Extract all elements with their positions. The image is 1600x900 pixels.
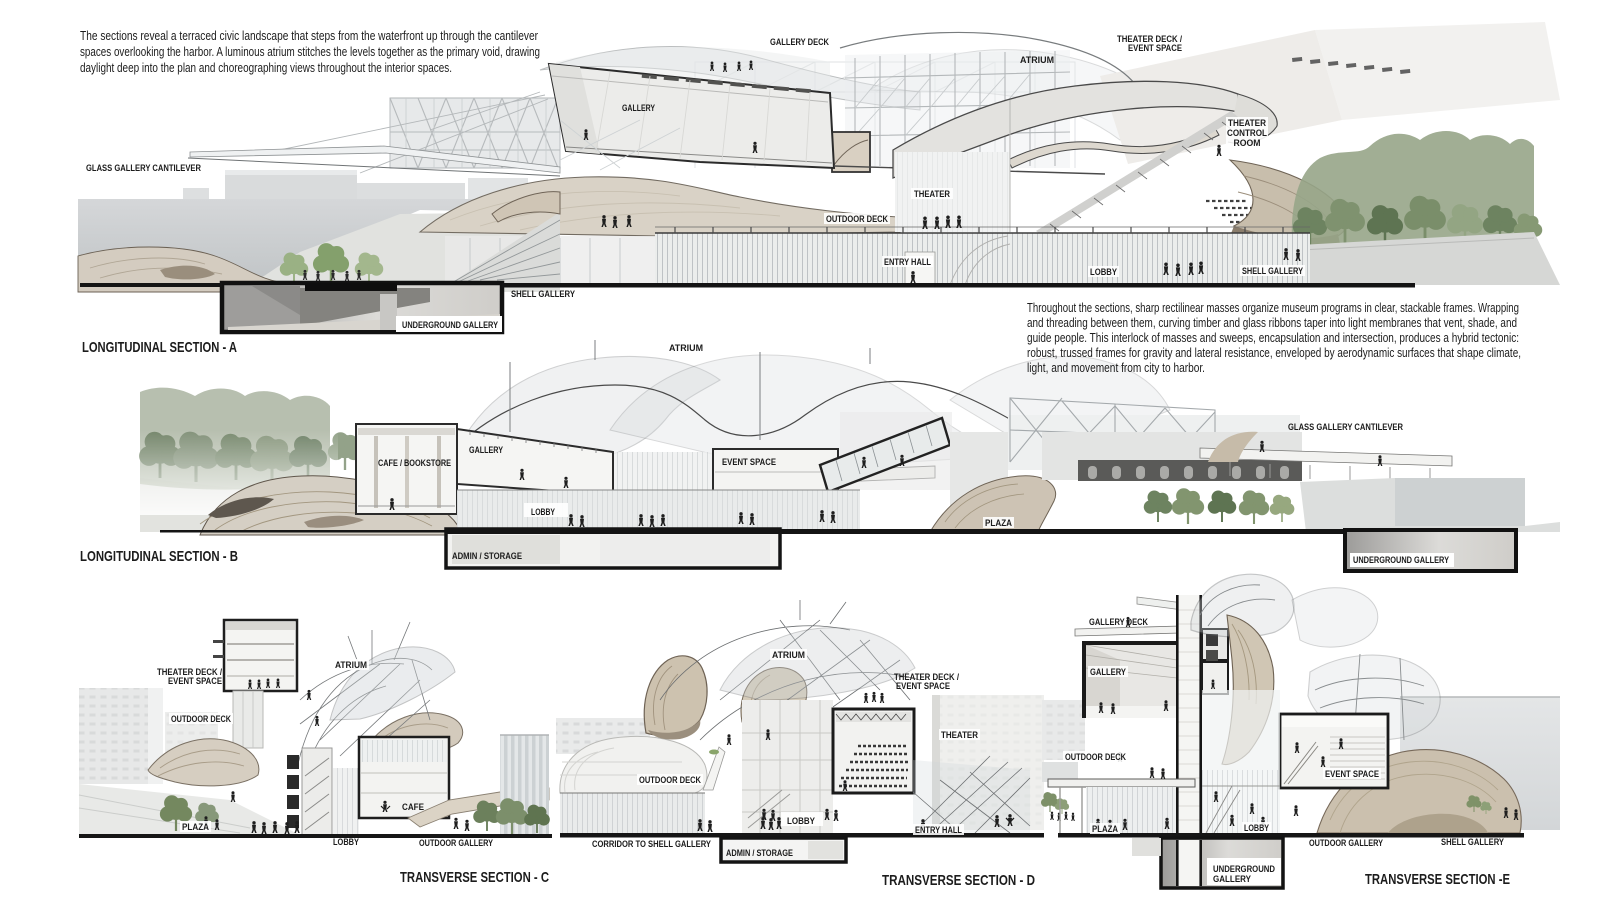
svg-text:TRANSVERSE SECTION - C: TRANSVERSE SECTION - C — [400, 869, 549, 886]
svg-text:LOBBY: LOBBY — [1244, 823, 1269, 833]
svg-text:OUTDOOR DECK: OUTDOOR DECK — [171, 714, 231, 724]
svg-text:ATRIUM: ATRIUM — [335, 660, 367, 670]
svg-text:GALLERY: GALLERY — [622, 103, 655, 113]
svg-text:and threading between them, cu: and threading between them, curving timb… — [1027, 315, 1517, 330]
svg-text:ADMIN / STORAGE: ADMIN / STORAGE — [452, 551, 522, 561]
svg-text:LOBBY: LOBBY — [531, 507, 555, 517]
svg-text:GALLERY DECK: GALLERY DECK — [770, 37, 829, 47]
svg-text:GLASS GALLERY CANTILEVER: GLASS GALLERY CANTILEVER — [1288, 422, 1403, 432]
svg-text:THEATER: THEATER — [914, 189, 950, 199]
svg-text:ENTRY HALL: ENTRY HALL — [884, 257, 931, 267]
svg-text:CAFE / BOOKSTORE: CAFE / BOOKSTORE — [378, 458, 451, 468]
svg-text:LOBBY: LOBBY — [1090, 267, 1117, 277]
svg-text:GALLERY: GALLERY — [1213, 874, 1251, 884]
svg-text:TRANSVERSE SECTION - D: TRANSVERSE SECTION - D — [882, 872, 1035, 889]
svg-text:daylight deep into the plan an: daylight deep into the plan and choreogr… — [80, 60, 452, 75]
svg-text:OUTDOOR DECK: OUTDOOR DECK — [639, 775, 701, 785]
svg-text:THEATER: THEATER — [1228, 118, 1266, 128]
svg-text:light, and movement from city: light, and movement from city to harbor. — [1027, 360, 1205, 375]
svg-text:CORRIDOR TO SHELL GALLERY: CORRIDOR TO SHELL GALLERY — [592, 839, 711, 849]
svg-text:GALLERY DECK: GALLERY DECK — [1089, 617, 1148, 627]
svg-text:Throughout the sections, sharp: Throughout the sections, sharp rectiline… — [1027, 300, 1519, 315]
svg-text:OUTDOOR DECK: OUTDOOR DECK — [826, 214, 888, 224]
svg-text:GALLERY: GALLERY — [1090, 667, 1126, 677]
svg-text:TRANSVERSE SECTION -E: TRANSVERSE SECTION -E — [1365, 871, 1510, 888]
svg-text:LOBBY: LOBBY — [787, 816, 815, 826]
svg-text:PLAZA: PLAZA — [985, 518, 1012, 528]
svg-text:OUTDOOR GALLERY: OUTDOOR GALLERY — [419, 838, 493, 848]
svg-text:OUTDOOR DECK: OUTDOOR DECK — [1065, 752, 1126, 762]
svg-text:GALLERY: GALLERY — [469, 445, 503, 455]
svg-text:SHELL GALLERY: SHELL GALLERY — [1242, 266, 1303, 276]
svg-text:EVENT SPACE: EVENT SPACE — [1128, 43, 1182, 53]
svg-text:The sections reveal a terraced: The sections reveal a terraced civic lan… — [80, 28, 539, 43]
svg-text:OUTDOOR GALLERY: OUTDOOR GALLERY — [1309, 838, 1383, 848]
svg-text:CONTROL: CONTROL — [1227, 128, 1267, 138]
svg-text:EVENT SPACE: EVENT SPACE — [722, 457, 776, 467]
svg-text:ATRIUM: ATRIUM — [772, 650, 805, 660]
svg-text:LONGITUDINAL SECTION - B: LONGITUDINAL SECTION - B — [80, 548, 238, 565]
svg-text:ATRIUM: ATRIUM — [669, 343, 703, 353]
svg-text:spaces overlooking the harbor.: spaces overlooking the harbor. A luminou… — [80, 44, 540, 59]
svg-text:ENTRY HALL: ENTRY HALL — [915, 825, 962, 835]
svg-text:SHELL GALLERY: SHELL GALLERY — [511, 289, 575, 299]
svg-text:guide people. This interlock o: guide people. This interlock of masses a… — [1027, 330, 1519, 345]
svg-text:UNDERGROUND: UNDERGROUND — [1213, 864, 1275, 874]
svg-text:EVENT SPACE: EVENT SPACE — [896, 681, 950, 691]
svg-text:GLASS GALLERY CANTILEVER: GLASS GALLERY CANTILEVER — [86, 163, 201, 173]
svg-text:LONGITUDINAL SECTION - A: LONGITUDINAL SECTION - A — [82, 339, 237, 356]
svg-text:ATRIUM: ATRIUM — [1020, 55, 1054, 65]
svg-text:THEATER: THEATER — [941, 730, 978, 740]
svg-text:PLAZA: PLAZA — [182, 822, 209, 832]
svg-text:UNDERGROUND GALLERY: UNDERGROUND GALLERY — [1353, 555, 1449, 565]
svg-text:EVENT SPACE: EVENT SPACE — [1325, 769, 1379, 779]
svg-text:EVENT SPACE: EVENT SPACE — [168, 676, 222, 686]
svg-text:robust, trussed frames for gra: robust, trussed frames for gravity and l… — [1027, 345, 1521, 360]
svg-text:CAFE: CAFE — [402, 802, 424, 812]
svg-text:LOBBY: LOBBY — [333, 837, 359, 847]
svg-text:UNDERGROUND GALLERY: UNDERGROUND GALLERY — [402, 320, 498, 330]
svg-text:SHELL GALLERY: SHELL GALLERY — [1441, 837, 1504, 847]
svg-text:ROOM: ROOM — [1234, 138, 1261, 148]
svg-text:PLAZA: PLAZA — [1092, 824, 1118, 834]
svg-text:ADMIN / STORAGE: ADMIN / STORAGE — [726, 848, 793, 858]
